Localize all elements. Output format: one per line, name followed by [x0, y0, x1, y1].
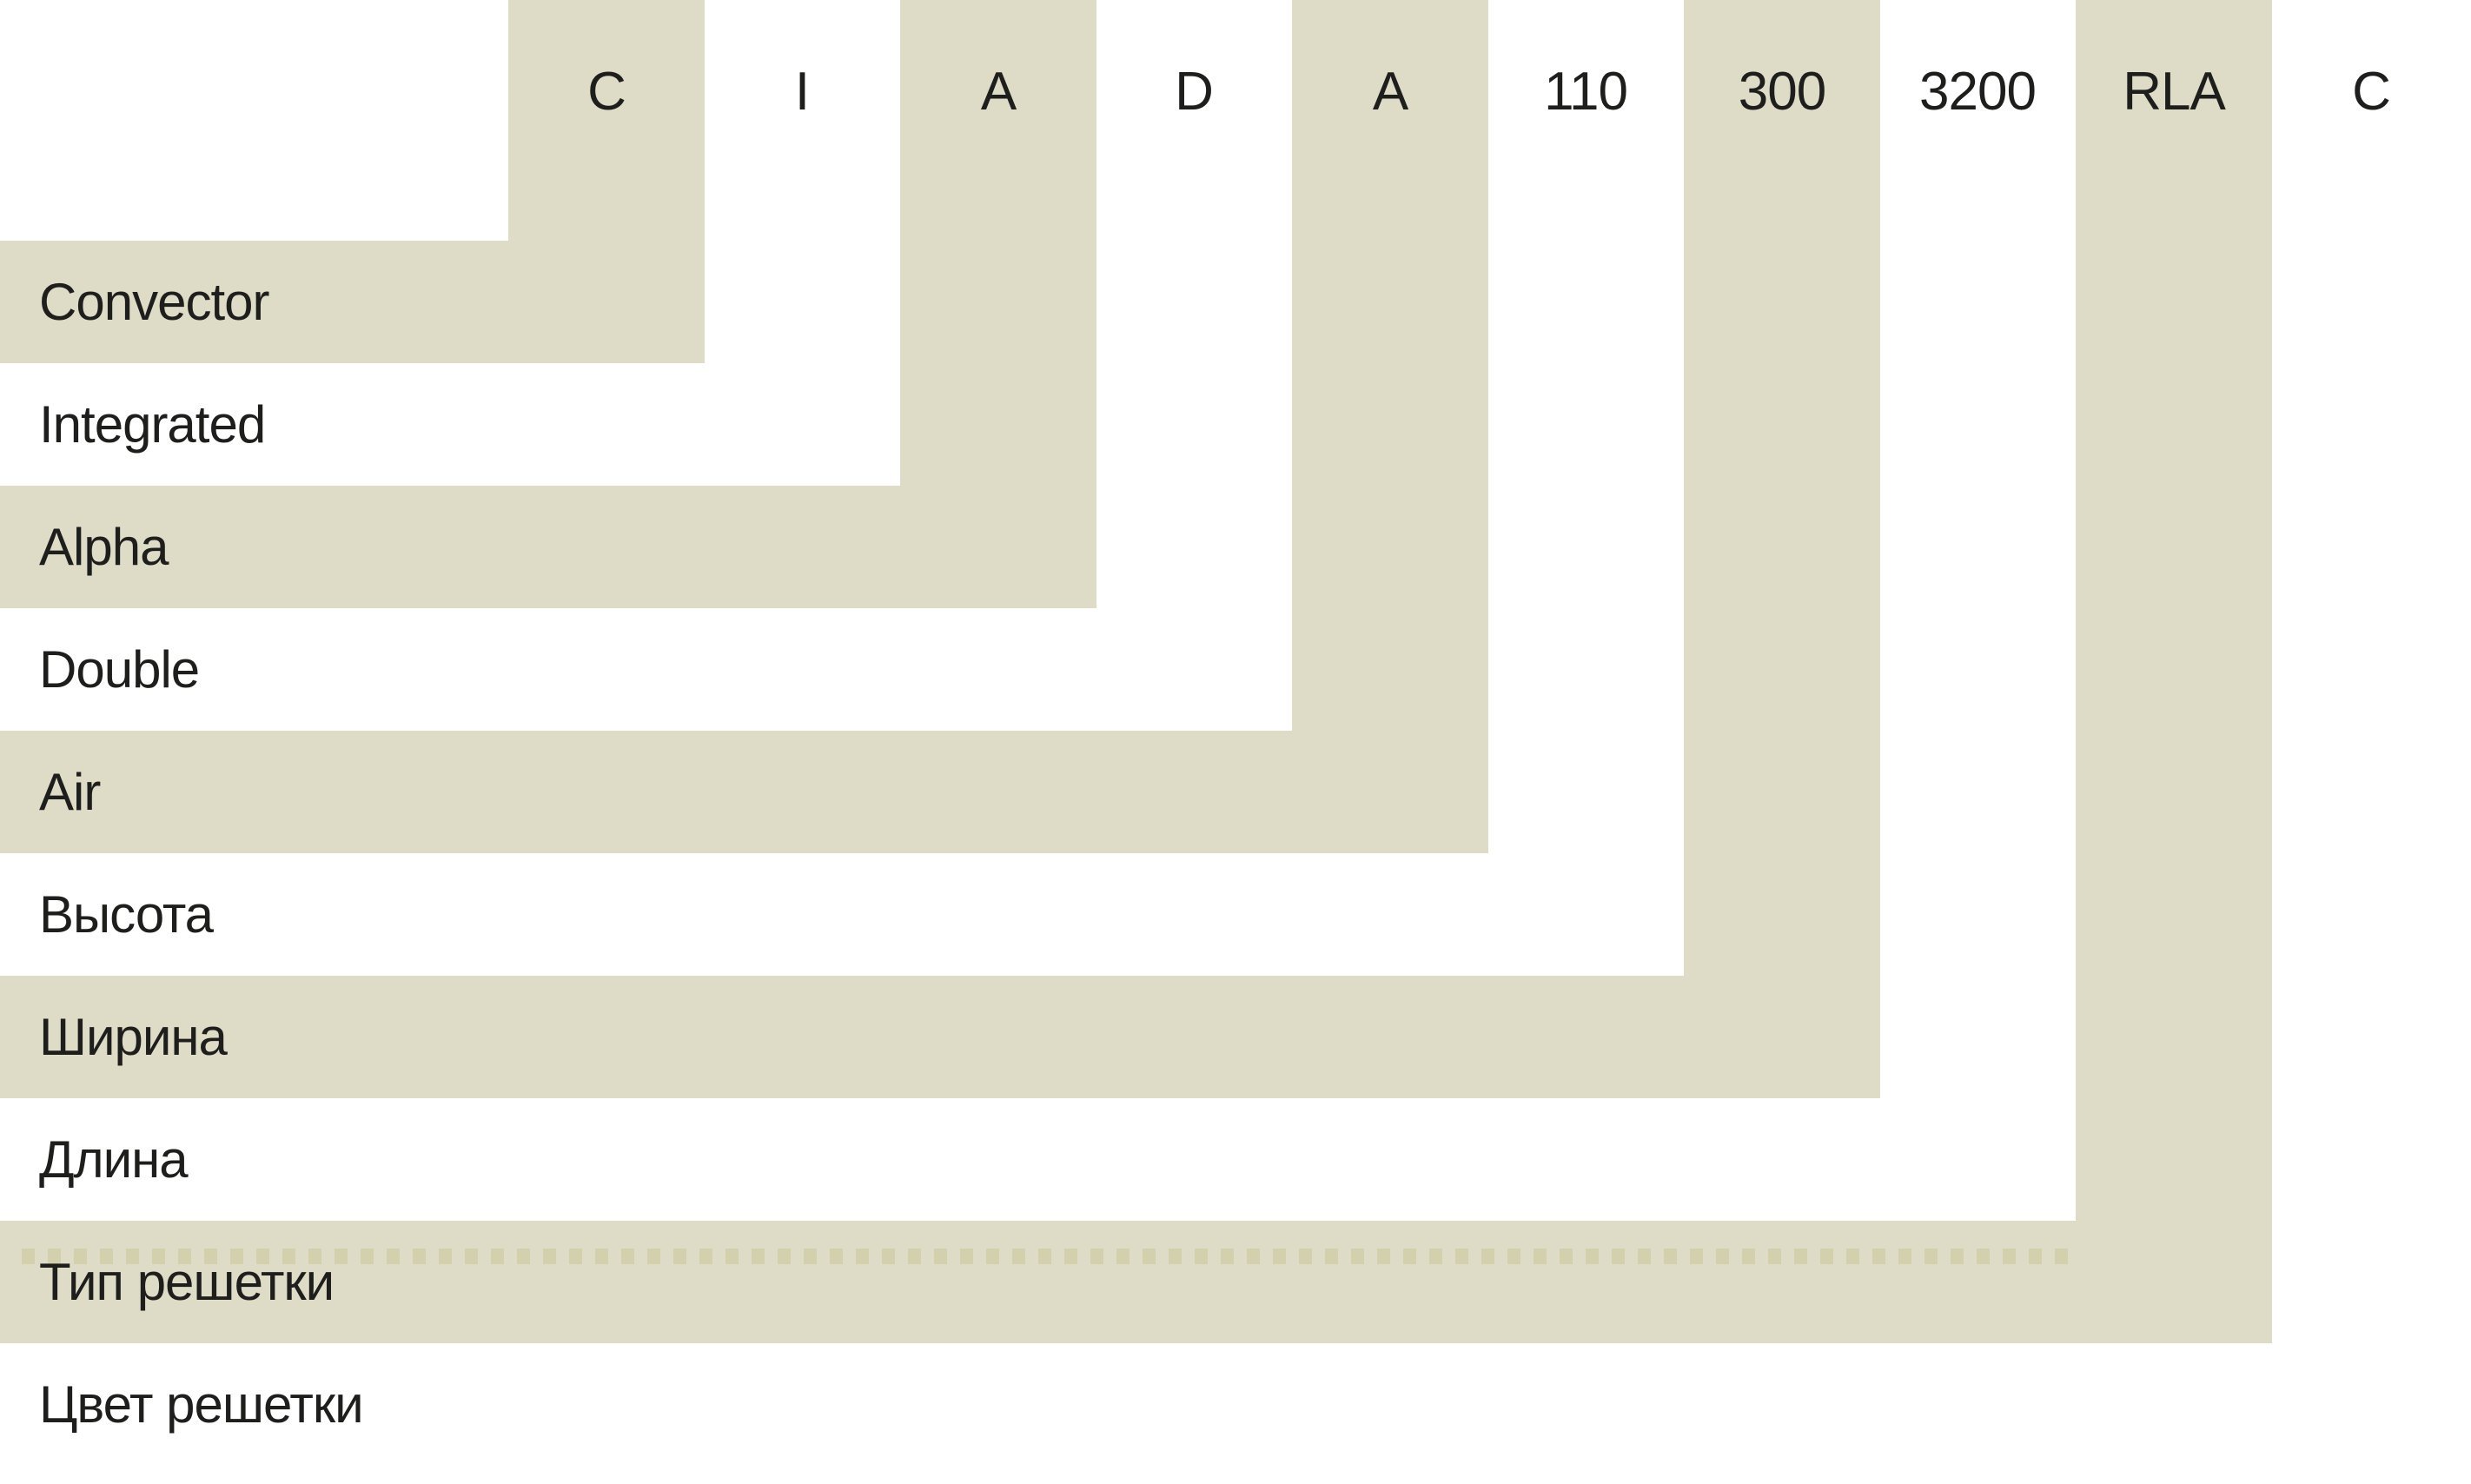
header-code-grille-color: C — [2271, 0, 2471, 182]
header-code-double: D — [1096, 0, 1292, 182]
header-code-alpha: A — [900, 0, 1096, 182]
row-label-grille-color: Цвет решетки — [39, 1343, 363, 1466]
row-label-grille-type: Тип решетки — [39, 1221, 334, 1343]
row-band-width — [0, 976, 1880, 1098]
header-code-grille-type: RLA — [2076, 0, 2272, 182]
row-label-convector: Convector — [39, 241, 268, 363]
row-label-air: Air — [39, 731, 100, 853]
row-band-air — [0, 731, 1488, 853]
row-band-grille-type — [0, 1221, 2272, 1343]
header-code-convector: C — [508, 0, 705, 182]
row-label-alpha: Alpha — [39, 486, 168, 608]
header-code-height: 110 — [1487, 0, 1684, 182]
header-code-integrated: I — [704, 0, 900, 182]
row-label-double: Double — [39, 608, 199, 731]
row-label-height: Высота — [39, 853, 213, 976]
row-label-length: Длина — [39, 1098, 188, 1221]
row-label-integrated: Integrated — [39, 363, 265, 486]
nomenclature-diagram: C I A D A 110 300 3200 RLA C Convector I… — [0, 0, 2471, 1484]
header-code-length: 3200 — [1879, 0, 2076, 182]
header-code-air: A — [1292, 0, 1488, 182]
row-label-width: Ширина — [39, 976, 227, 1098]
header-code-width: 300 — [1684, 0, 1880, 182]
column-bar-grille-type — [2076, 0, 2272, 1343]
